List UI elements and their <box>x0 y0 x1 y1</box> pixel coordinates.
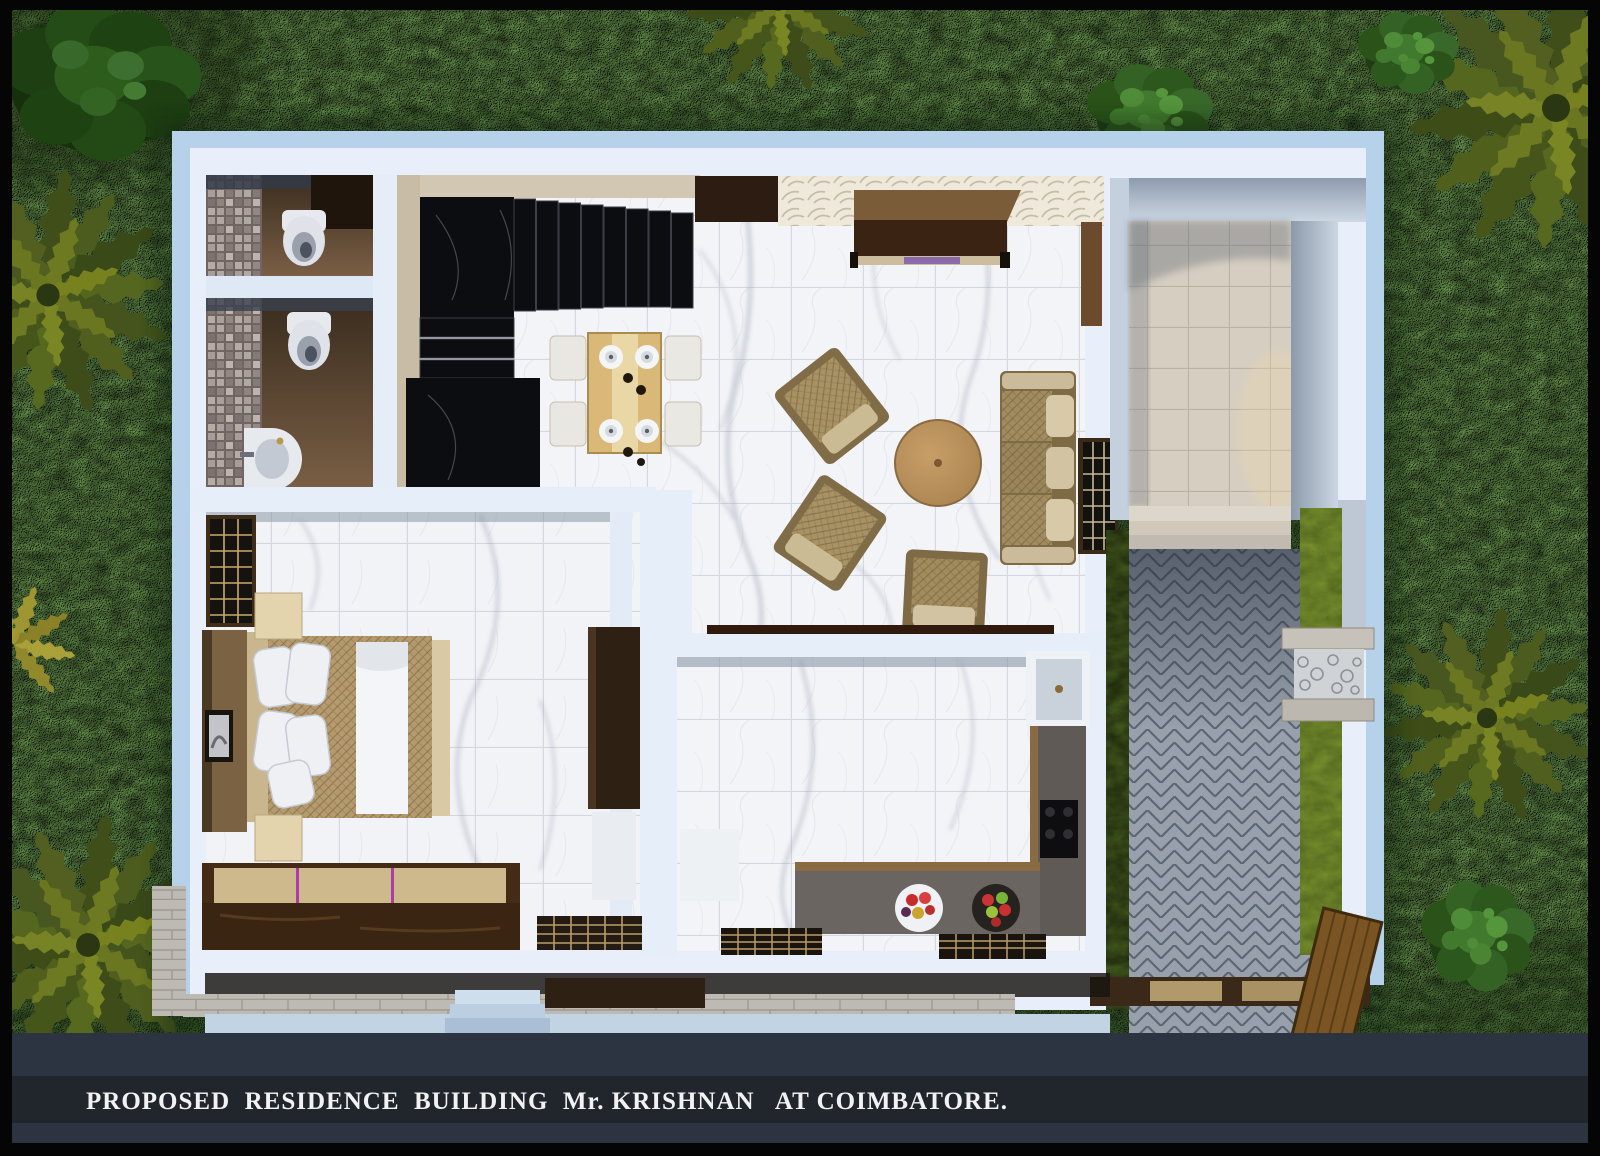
svg-text:PROPOSED RESIDENCE BUILDING: PROPOSED RESIDENCE BUILDING Mr. KRISHNAN… <box>86 1088 1008 1115</box>
